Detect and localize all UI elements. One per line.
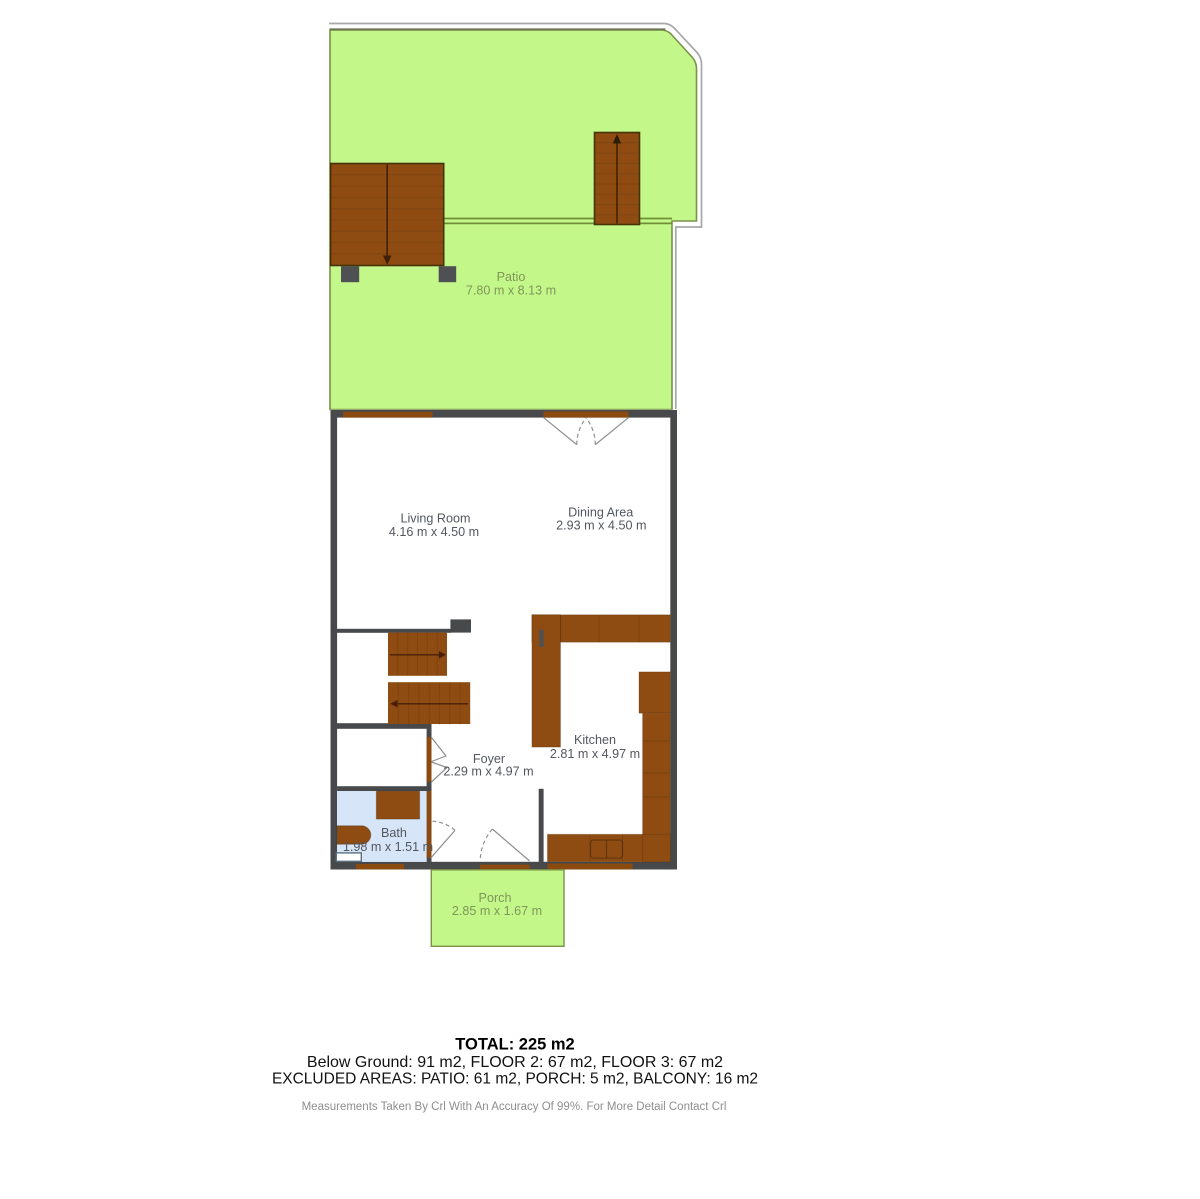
svg-text:4.16 m x 4.50 m: 4.16 m x 4.50 m	[389, 525, 479, 539]
svg-text:Living Room: Living Room	[401, 511, 471, 525]
svg-text:Kitchen: Kitchen	[574, 733, 616, 747]
svg-text:Dining Area: Dining Area	[568, 506, 633, 520]
svg-text:2.29 m x 4.97 m: 2.29 m x 4.97 m	[443, 765, 533, 779]
svg-text:2.93 m x 4.50 m: 2.93 m x 4.50 m	[556, 519, 646, 533]
svg-text:7.80 m x 8.13 m: 7.80 m x 8.13 m	[466, 284, 556, 298]
svg-text:Porch: Porch	[479, 891, 512, 905]
svg-text:Bath: Bath	[381, 826, 407, 840]
svg-text:TOTAL: 225 m2: TOTAL: 225 m2	[455, 1036, 575, 1054]
svg-text:2.85 m x 1.67 m: 2.85 m x 1.67 m	[452, 904, 542, 918]
svg-text:EXCLUDED AREAS: PATIO: 61 m2,: EXCLUDED AREAS: PATIO: 61 m2, PORCH: 5 m…	[272, 1070, 758, 1087]
svg-text:1.98 m x 1.51 m: 1.98 m x 1.51 m	[343, 840, 433, 854]
svg-text:Measurements Taken By Crl With: Measurements Taken By Crl With An Accura…	[302, 1101, 727, 1113]
svg-text:Below Ground: 91 m2, FLOOR 2:: Below Ground: 91 m2, FLOOR 2: 67 m2, FLO…	[307, 1054, 723, 1071]
svg-text:Patio: Patio	[497, 270, 526, 284]
svg-text:2.81 m x 4.97 m: 2.81 m x 4.97 m	[550, 747, 640, 761]
